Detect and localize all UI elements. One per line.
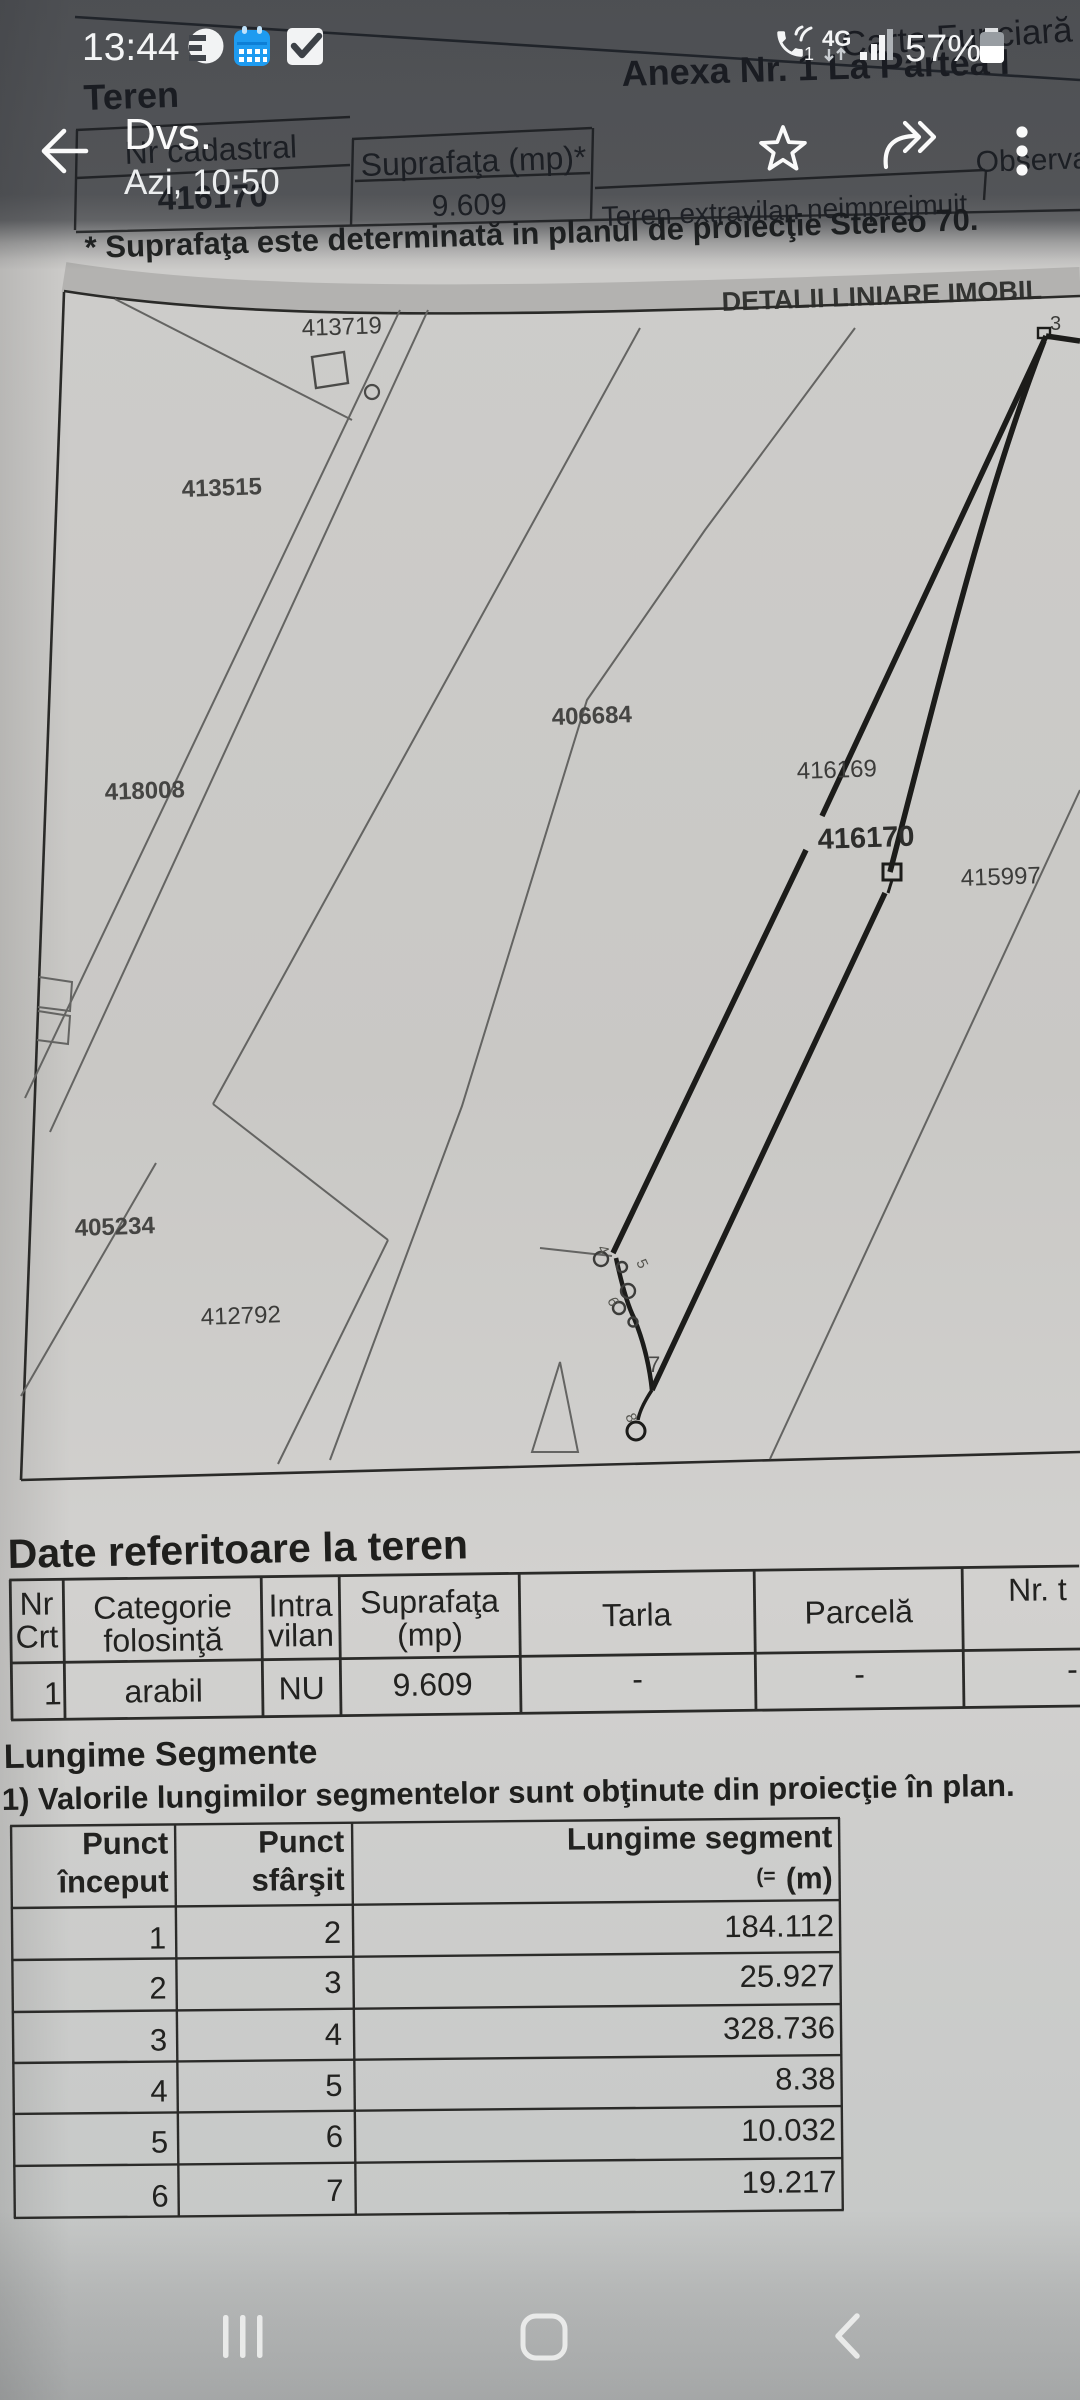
svg-text:57%: 57% [905,28,981,70]
svg-text:-: - [632,1661,643,1697]
svg-text:1: 1 [804,44,814,64]
svg-text:416170: 416170 [817,821,915,856]
svg-text:3: 3 [324,1965,342,2000]
svg-text:3: 3 [1050,313,1061,335]
svg-text:sfârşit: sfârşit [251,1862,344,1898]
svg-text:Punct: Punct [258,1824,344,1860]
svg-text:406684: 406684 [551,701,633,731]
svg-text:(=: (= [756,1865,775,1888]
svg-text:Date referitoare la teren: Date referitoare la teren [7,1521,468,1577]
svg-text:Lungime Segmente: Lungime Segmente [4,1733,318,1776]
svg-text:25.927: 25.927 [740,1958,835,1994]
svg-text:NU: NU [278,1670,325,1707]
svg-text:6: 6 [151,2178,169,2213]
svg-text:184.112: 184.112 [724,1908,834,1944]
svg-text:10.032: 10.032 [741,2112,836,2148]
svg-text:(mp): (mp) [397,1616,463,1653]
svg-text:Lungime segment: Lungime segment [567,1819,833,1857]
svg-text:1: 1 [44,1675,62,1711]
svg-text:6: 6 [326,2119,344,2154]
svg-text:Nr: Nr [19,1585,54,1621]
svg-text:2: 2 [149,1971,167,2006]
svg-text:4: 4 [325,2017,343,2052]
svg-text:arabil: arabil [124,1672,203,1709]
svg-text:-: - [1067,1651,1078,1687]
svg-text:Nr. t: Nr. t [1008,1571,1067,1608]
svg-text:Crt: Crt [15,1618,58,1655]
svg-text:418008: 418008 [104,776,185,806]
svg-text:folosinţă: folosinţă [103,1621,223,1659]
svg-text:-: - [854,1656,865,1692]
svg-text:3: 3 [150,2023,168,2058]
svg-text:415997: 415997 [960,862,1041,892]
svg-text:328.736: 328.736 [723,2010,835,2046]
svg-text:Azi, 10:50: Azi, 10:50 [124,163,280,202]
svg-text:Punct: Punct [82,1825,168,1861]
svg-text:416169: 416169 [796,755,877,785]
svg-text:Parcelă: Parcelă [804,1593,913,1630]
svg-text:412792: 412792 [200,1301,281,1331]
svg-text:8.38: 8.38 [775,2061,836,2097]
svg-text:1: 1 [149,1921,167,1956]
svg-text:5: 5 [151,2124,169,2159]
svg-text:4G: 4G [822,26,851,51]
svg-text:4: 4 [150,2074,168,2109]
svg-text:9.609: 9.609 [392,1666,473,1703]
svg-text:413719: 413719 [301,312,382,342]
svg-text:vilan: vilan [268,1617,334,1654]
svg-text:(m): (m) [786,1862,833,1895]
svg-text:7: 7 [648,1352,660,1377]
svg-text:2: 2 [324,1915,342,1950]
svg-text:413515: 413515 [181,473,262,503]
svg-text:19.217: 19.217 [742,2164,837,2200]
svg-text:Categorie: Categorie [93,1588,232,1626]
svg-text:Dvs.: Dvs. [124,110,212,159]
svg-text:Tarla: Tarla [602,1596,672,1633]
svg-text:405234: 405234 [74,1212,156,1242]
svg-text:13:44: 13:44 [82,26,180,69]
svg-text:Suprafaţa: Suprafaţa [360,1583,499,1621]
svg-text:început: început [56,1863,169,1899]
svg-text:7: 7 [326,2173,344,2208]
svg-text:5: 5 [325,2068,343,2103]
